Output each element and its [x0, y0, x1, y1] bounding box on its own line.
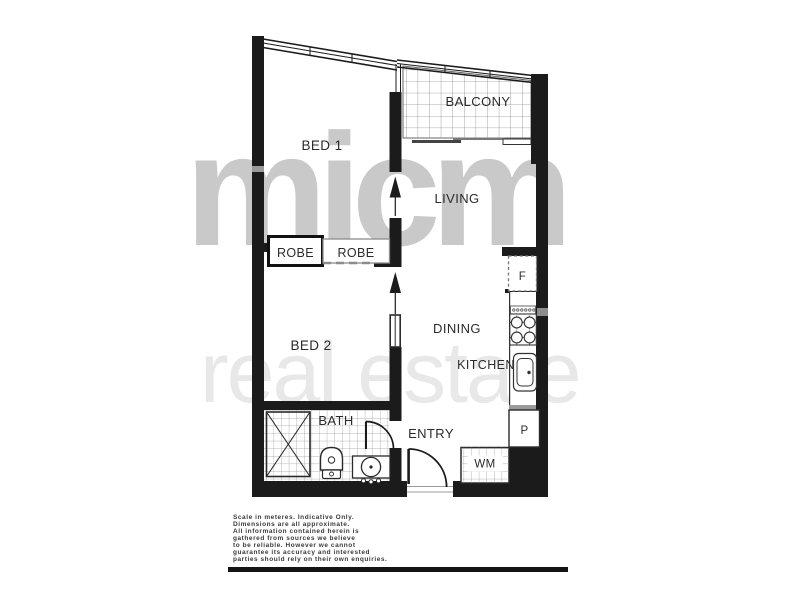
label-pantry: P — [520, 425, 528, 437]
disclaimer-line: Dimensions are all approximate. — [233, 521, 453, 528]
disclaimer-line: gathered from sources we believe — [233, 535, 453, 542]
disclaimer-line: guarantee its accuracy and interested — [233, 549, 453, 556]
wall-bath-top — [252, 401, 402, 410]
wall-balcony-divider — [390, 92, 402, 172]
disclaimer-text: Scale in meteres. Indicative Only. Dimen… — [233, 514, 453, 563]
disclaimer-line: to be reliable. However we cannot — [233, 542, 453, 549]
wall-bath-right — [390, 448, 402, 481]
label-washing-machine: WM — [474, 459, 495, 471]
disclaimer-line: Scale in meteres. Indicative Only. — [233, 514, 453, 521]
wall-partition — [390, 218, 402, 267]
wall-left — [252, 36, 264, 481]
sink-icon — [514, 354, 537, 392]
wall-window-joint — [537, 308, 548, 316]
footer-divider-bar — [228, 567, 568, 572]
room-label-bath: BATH — [318, 413, 353, 428]
room-label-kitchen: KITCHEN — [457, 358, 515, 372]
floorplan-svg: BED 1 BALCONY LIVING ROBE ROBE BED 2 DIN… — [0, 0, 800, 600]
wall-kitchen-stub — [502, 247, 536, 256]
sliding-door-panel — [453, 138, 505, 141]
slider-arrow-icon — [390, 177, 401, 217]
floorplan-page: micm real estate — [0, 0, 800, 600]
room-label-living: LIVING — [434, 191, 479, 206]
bed1-window-band — [263, 39, 397, 70]
slider-arrow-icon — [390, 272, 401, 314]
wall-bath-right — [390, 410, 402, 421]
room-label-dining: DINING — [433, 321, 481, 336]
room-label-entry: ENTRY — [408, 426, 454, 441]
disclaimer-line: All information contained herein is — [233, 528, 453, 535]
wall-window-joint — [252, 166, 264, 172]
wall-robe-stub — [252, 243, 269, 252]
sliding-door-panel — [412, 140, 461, 143]
toilet-icon — [321, 448, 343, 479]
room-label-bed1: BED 1 — [301, 138, 342, 153]
room-label-robe2: ROBE — [337, 246, 374, 260]
sliding-door-leaf — [390, 315, 400, 347]
label-fridge: F — [519, 271, 526, 283]
disclaimer-line: parties should rely on their own enquiri… — [233, 556, 453, 563]
window-panel — [503, 139, 531, 145]
wall-partition — [390, 347, 402, 402]
room-label-bed2: BED 2 — [290, 338, 331, 353]
wall-laundry-block — [509, 447, 548, 481]
room-label-balcony: BALCONY — [446, 94, 511, 109]
cooktop-icon — [510, 306, 537, 345]
room-label-robe1: ROBE — [277, 246, 314, 260]
